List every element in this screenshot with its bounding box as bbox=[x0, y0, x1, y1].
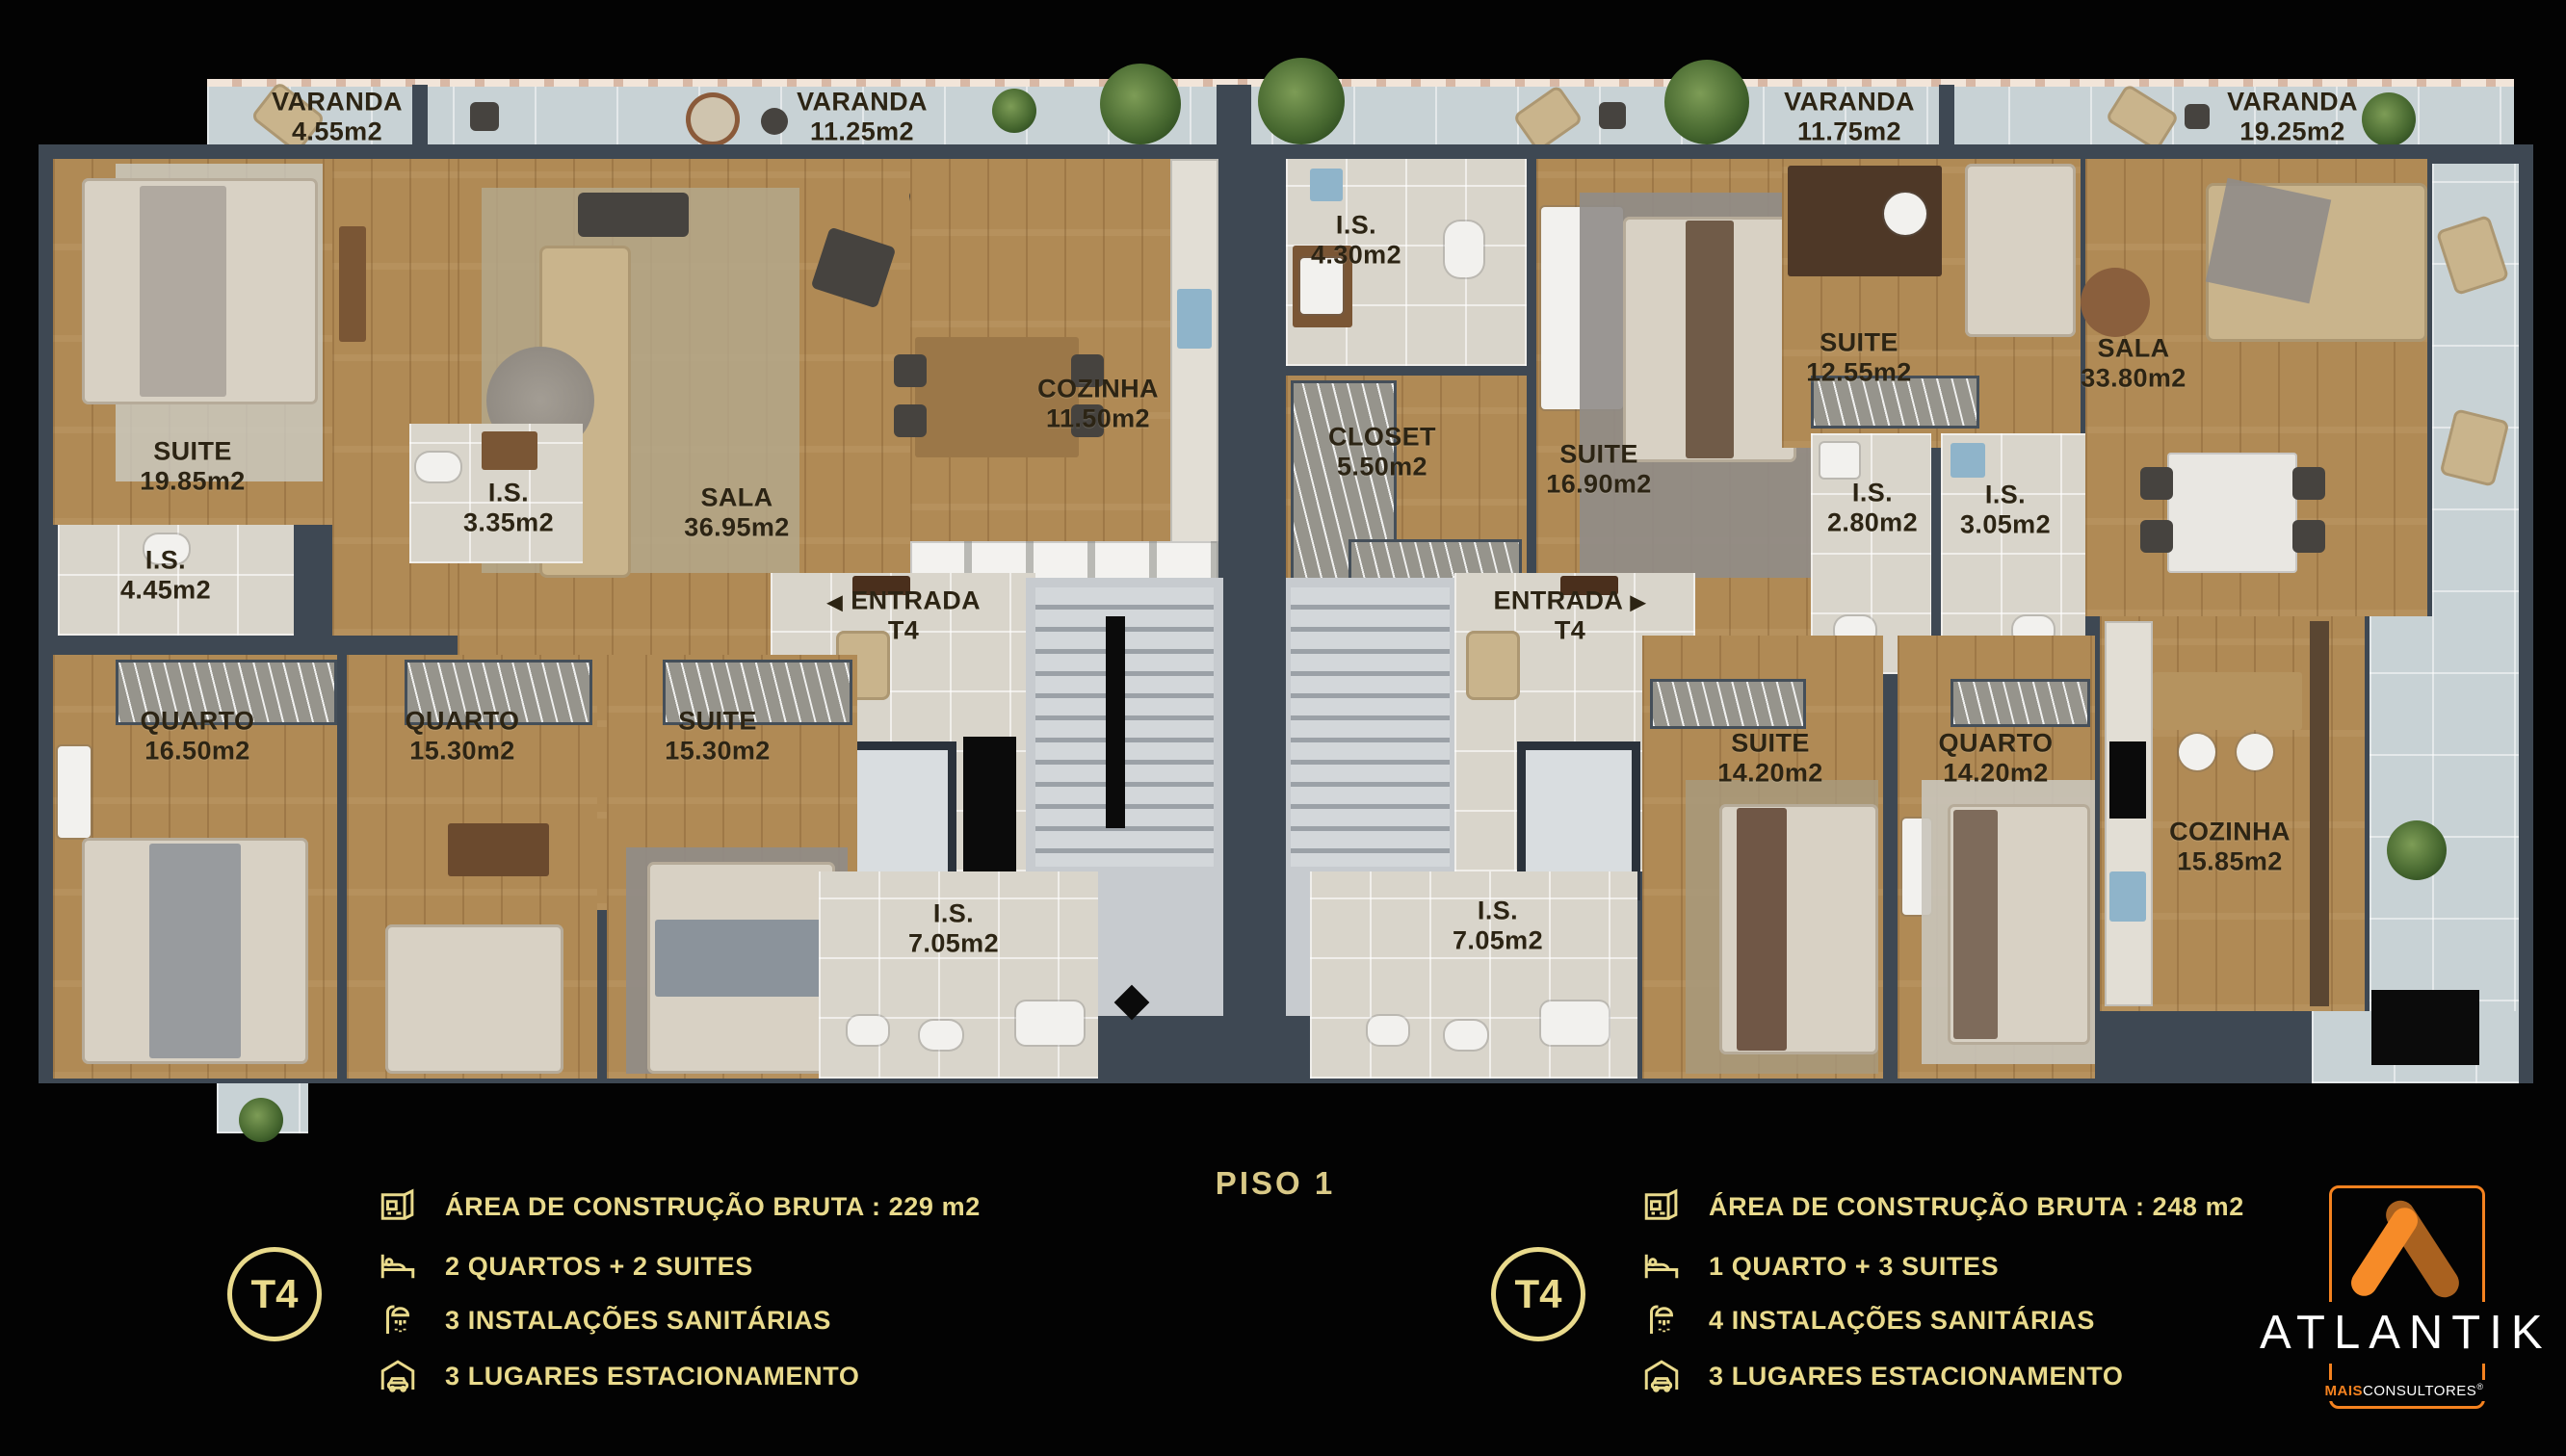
kitchen-counter bbox=[1170, 159, 1218, 544]
entrada-label-left: ◀ ENTRADAT4 bbox=[826, 586, 981, 647]
sink bbox=[1820, 443, 1859, 478]
bed bbox=[1623, 217, 1796, 462]
plant bbox=[2362, 92, 2416, 146]
bed bbox=[82, 838, 308, 1064]
side-cube bbox=[470, 102, 499, 131]
dining-table bbox=[2167, 453, 2297, 573]
room-label-quarto: QUARTO16.50m2 bbox=[141, 707, 255, 767]
kitchen-sink bbox=[1177, 289, 1212, 349]
desk bbox=[58, 746, 91, 838]
vanity bbox=[482, 431, 537, 470]
legend-left-row-is: 3 INSTALAÇÕES SANITÁRIAS bbox=[378, 1300, 831, 1340]
toilet bbox=[1445, 1021, 1487, 1050]
varanda-label: VARANDA11.25m2 bbox=[797, 88, 928, 148]
side-cube bbox=[1599, 102, 1626, 129]
bed bbox=[1948, 804, 2090, 1045]
bed-icon bbox=[1641, 1246, 1682, 1287]
plant bbox=[239, 1098, 283, 1142]
stool bbox=[2179, 734, 2215, 770]
room-label-is: I.S.3.05m2 bbox=[1960, 481, 2051, 541]
stool bbox=[2237, 734, 2273, 770]
t4-badge-right: T4 bbox=[1491, 1247, 1585, 1341]
marketing-floorplan-sheet: { "floor_title": "PISO 1", "varandas": [… bbox=[0, 0, 2566, 1456]
varanda-label: VARANDA19.25m2 bbox=[2227, 88, 2358, 148]
garage-icon bbox=[1641, 1356, 1682, 1396]
room-label-cozinha: COZINHA11.50m2 bbox=[1037, 375, 1159, 435]
chair bbox=[894, 404, 927, 437]
coffee-table bbox=[2081, 268, 2150, 337]
bathtub bbox=[1541, 1001, 1609, 1045]
atlantik-subbrand: MAISCONSULTORES® bbox=[2323, 1380, 2485, 1401]
bed bbox=[385, 924, 563, 1074]
legend-left-row-quartos: 2 QUARTOS + 2 SUITES bbox=[378, 1246, 753, 1287]
legend-right-row-is: 4 INSTALAÇÕES SANITÁRIAS bbox=[1641, 1300, 2095, 1340]
chair bbox=[2292, 520, 2325, 553]
entrada-label-right: ENTRADA ▶T4 bbox=[1493, 586, 1646, 647]
kitchen-sink bbox=[2109, 871, 2146, 922]
terrace-right bbox=[2432, 164, 2519, 1083]
room-label-sala: SALA36.95m2 bbox=[684, 483, 789, 544]
room-label-suite: SUITE12.55m2 bbox=[1806, 328, 1911, 389]
bed bbox=[1965, 164, 2076, 337]
varanda-label: VARANDA11.75m2 bbox=[1784, 88, 1915, 148]
plant bbox=[2387, 820, 2447, 880]
toilet bbox=[416, 453, 460, 481]
room-label-closet: CLOSET5.50m2 bbox=[1328, 423, 1436, 483]
room-label-is: I.S.4.30m2 bbox=[1311, 211, 1401, 272]
room-label-cozinha: COZINHA15.85m2 bbox=[2169, 818, 2291, 878]
cabinet-column bbox=[2310, 621, 2329, 1006]
room-label-is: I.S.3.35m2 bbox=[463, 479, 554, 539]
varanda-railing bbox=[207, 79, 2514, 87]
kitchen-island bbox=[2153, 672, 2302, 730]
t4-badge-left: T4 bbox=[227, 1247, 322, 1341]
chair bbox=[2140, 467, 2173, 500]
shower-icon bbox=[378, 1300, 418, 1340]
round-chair bbox=[686, 92, 740, 146]
garage-icon bbox=[378, 1356, 418, 1396]
shower bbox=[1951, 443, 1985, 478]
room-label-is: I.S.7.05m2 bbox=[908, 899, 999, 960]
plant bbox=[1258, 58, 1345, 144]
toilet bbox=[920, 1021, 962, 1050]
chair bbox=[2140, 520, 2173, 553]
bathtub bbox=[1016, 1001, 1084, 1045]
atlantik-wordmark: ATLANTIK bbox=[2260, 1302, 2549, 1364]
atlantik-a-mark bbox=[2339, 1196, 2470, 1304]
dresser bbox=[448, 823, 549, 876]
sideboard bbox=[339, 226, 366, 342]
shower bbox=[1310, 169, 1343, 201]
room-label-suite: SUITE14.20m2 bbox=[1717, 729, 1822, 790]
room-label-suite: SUITE19.85m2 bbox=[140, 437, 245, 498]
stairs-steps bbox=[1291, 587, 1450, 867]
bed bbox=[1719, 804, 1878, 1054]
stove bbox=[2109, 741, 2146, 819]
stair-railing bbox=[1106, 616, 1125, 828]
chair bbox=[894, 354, 927, 387]
plant bbox=[1100, 64, 1181, 144]
bed bbox=[647, 862, 835, 1074]
room-label-sala: SALA33.80m2 bbox=[2081, 334, 2186, 395]
room-label-quarto: QUARTO15.30m2 bbox=[406, 707, 520, 767]
bed bbox=[82, 178, 318, 404]
wardrobe bbox=[1650, 679, 1806, 729]
bed-icon bbox=[378, 1246, 418, 1287]
room-label-suite: SUITE16.90m2 bbox=[1546, 440, 1651, 501]
varanda-label: VARANDA4.55m2 bbox=[272, 88, 403, 148]
room-label-suite: SUITE15.30m2 bbox=[665, 707, 770, 767]
side-cube bbox=[761, 108, 788, 135]
tv-unit bbox=[578, 193, 689, 237]
toilet bbox=[1445, 221, 1483, 277]
shower-icon bbox=[1641, 1300, 1682, 1340]
plant bbox=[992, 89, 1036, 133]
floor-title: PISO 1 bbox=[1216, 1165, 1335, 1202]
legend-right-row-quartos: 1 QUARTO + 3 SUITES bbox=[1641, 1246, 1999, 1287]
wardrobe bbox=[1951, 679, 2090, 727]
doormat bbox=[2371, 990, 2479, 1065]
chair bbox=[2292, 467, 2325, 500]
sofa-throw bbox=[2206, 178, 2331, 303]
legend-right-row-parking: 3 LUGARES ESTACIONAMENTO bbox=[1641, 1356, 2123, 1396]
legend-left-row-area: ÁREA DE CONSTRUÇÃO BRUTA : 229 m2 bbox=[378, 1186, 981, 1227]
sink bbox=[1368, 1016, 1408, 1045]
sink bbox=[848, 1016, 888, 1045]
plant bbox=[1664, 60, 1749, 144]
legend-left-row-parking: 3 LUGARES ESTACIONAMENTO bbox=[378, 1356, 859, 1396]
legend-right-row-area: ÁREA DE CONSTRUÇÃO BRUTA : 248 m2 bbox=[1641, 1186, 2244, 1227]
room-label-quarto: QUARTO14.20m2 bbox=[1939, 729, 2054, 790]
chair bbox=[1884, 193, 1926, 235]
floorplan-icon bbox=[1641, 1186, 1682, 1227]
floorplan-icon bbox=[378, 1186, 418, 1227]
side-cube bbox=[2185, 104, 2210, 129]
room-label-is: I.S.4.45m2 bbox=[120, 546, 211, 607]
room-label-is: I.S.7.05m2 bbox=[1453, 897, 1543, 957]
floor-plan: VARANDA4.55m2 VARANDA11.25m2 VARANDA11.7… bbox=[0, 0, 2566, 1456]
room-label-is: I.S.2.80m2 bbox=[1827, 479, 1918, 539]
